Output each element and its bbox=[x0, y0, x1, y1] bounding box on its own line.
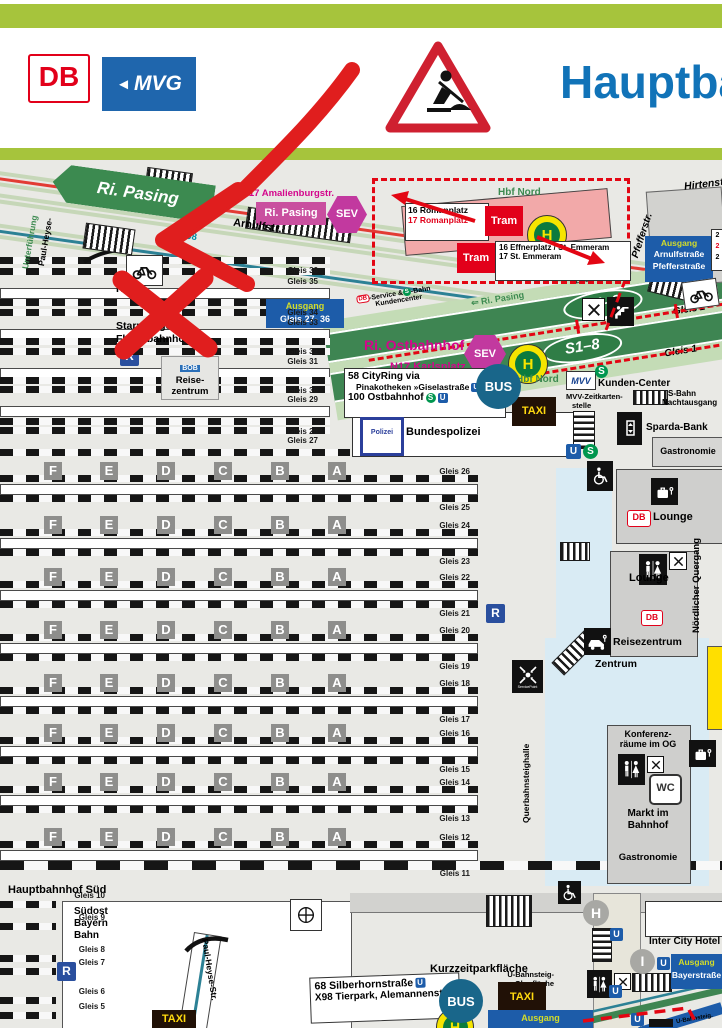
platform-section-letter: A bbox=[328, 828, 346, 846]
gleis-label: Gleis 20 bbox=[420, 626, 470, 635]
ri-pasing-sign-label: Ri. Pasing bbox=[96, 178, 180, 209]
gleis-label: Gleis 27 bbox=[268, 436, 318, 445]
tram-detour-box: Hbf Nord 16 Romanplatz 17 Romanplatz Tra… bbox=[372, 178, 630, 284]
track-bar bbox=[0, 806, 478, 813]
hbf-label: Hbf bbox=[116, 283, 134, 295]
platform-section-letter: C bbox=[214, 621, 232, 639]
bus-badge: BUS bbox=[439, 979, 483, 1023]
track-bar bbox=[0, 841, 478, 848]
sbahn-label: S-Bahn bbox=[668, 389, 696, 398]
construction-sign-icon bbox=[383, 38, 493, 138]
servicepoint-icon: ServicePoint bbox=[512, 660, 543, 693]
bike-parking-icon bbox=[126, 255, 163, 286]
page-title: Hauptbahnhof bbox=[560, 55, 722, 109]
gleis-label: Gleis 30 bbox=[268, 386, 318, 395]
mvv-zeitkarten-label: MVV-Zeitkarten- bbox=[566, 392, 623, 401]
platform-section-letter: F bbox=[44, 621, 62, 639]
track-bar bbox=[0, 997, 56, 1004]
platform-section-letter: C bbox=[214, 674, 232, 692]
platform-section-letter: D bbox=[157, 516, 175, 534]
u-mini-logo: U bbox=[438, 393, 448, 403]
gleis-label: Gleis 31 bbox=[268, 357, 318, 366]
platform-section-letter: B bbox=[271, 516, 289, 534]
exit-street-1: Arnulfstraße bbox=[645, 249, 713, 260]
info-circle-badge: I bbox=[630, 949, 655, 974]
platform-section-letter: E bbox=[100, 773, 118, 791]
platform-section-letter: B bbox=[271, 674, 289, 692]
u-bahn-logo: U bbox=[566, 444, 581, 459]
platform-section-letter: F bbox=[44, 773, 62, 791]
ausgang-word: Ausgang bbox=[521, 1013, 560, 1023]
taxi-sign: TAXI bbox=[498, 982, 546, 1012]
zentrum-label: Zentrum bbox=[595, 658, 637, 670]
platform-section-letter: F bbox=[44, 462, 62, 480]
track-bar bbox=[0, 449, 350, 456]
db-logo-small: DB bbox=[641, 610, 663, 626]
track-bar bbox=[0, 923, 56, 930]
db-logo-text: DB bbox=[39, 61, 79, 92]
cityring-line-2: Pinakotheken »Giselastraße bbox=[356, 382, 469, 392]
wheelchair-icon bbox=[587, 461, 613, 491]
revolving-door-icon bbox=[290, 899, 322, 931]
bundespolizei-label: Bundespolizei bbox=[406, 426, 481, 438]
ausgang-word: Ausgang bbox=[671, 956, 722, 969]
mvv-text: MVV bbox=[571, 376, 591, 386]
cityring-line-3: 100 Ostbahnhof bbox=[348, 392, 424, 403]
platform-section-letter: D bbox=[157, 621, 175, 639]
bayerstrasse-word: Bayerstraße bbox=[671, 969, 722, 982]
track-bar bbox=[0, 581, 478, 588]
r-regio-badge: R bbox=[486, 604, 505, 623]
platform-section-letter: E bbox=[100, 674, 118, 692]
platform-section-letter: A bbox=[328, 568, 346, 586]
platform-section-letter: F bbox=[44, 516, 62, 534]
closed-icon bbox=[669, 552, 687, 570]
gleis-label: Gleis 10 bbox=[55, 891, 105, 900]
u-bahn-logo: U bbox=[609, 985, 622, 998]
platform-section-letter: B bbox=[271, 828, 289, 846]
n17-amalienburgstr-label: N17 Amalienburgstr. bbox=[242, 188, 334, 199]
platform-section-letter: C bbox=[214, 516, 232, 534]
stairs-icon bbox=[632, 973, 672, 992]
bob-reisezentrum: BOB Reise- zentrum bbox=[161, 356, 219, 400]
tram-number: 2 bbox=[712, 241, 722, 252]
escalator-icon bbox=[592, 928, 612, 962]
platform-section-letter: E bbox=[100, 568, 118, 586]
gleis-label: Gleis 26 bbox=[420, 467, 470, 476]
markt-label-1: Markt im bbox=[609, 808, 687, 819]
track-bar bbox=[0, 654, 478, 661]
inter-city-hotel-label: Inter City Hotel bbox=[649, 936, 720, 947]
platform-section-letter: B bbox=[271, 568, 289, 586]
platform-section-letter: D bbox=[157, 724, 175, 742]
kunden-center-label: Kunden-Center bbox=[598, 378, 670, 389]
gleis-label: Gleis 13 bbox=[420, 814, 470, 823]
stairs-icon bbox=[486, 895, 532, 927]
platform-section-letter: B bbox=[271, 773, 289, 791]
luggage-locker-icon bbox=[689, 740, 716, 767]
platform-section-letter: C bbox=[214, 568, 232, 586]
ri-pasing-sev-label: Ri. Pasing bbox=[264, 207, 317, 219]
gleis-label: Gleis 8 bbox=[55, 945, 105, 954]
gleis-label: Gleis 29 bbox=[268, 395, 318, 404]
gleis-label: Gleis 17 bbox=[420, 715, 470, 724]
platform-strip bbox=[0, 696, 478, 707]
tram-number: 2 bbox=[712, 230, 722, 241]
gleis-label: Gleis 34 bbox=[268, 308, 318, 317]
u-bahn-logo: U bbox=[610, 928, 623, 941]
platform-section-letter: D bbox=[157, 828, 175, 846]
gleis-label: Gleis 25 bbox=[420, 503, 470, 512]
bahn-label: Bahn bbox=[74, 930, 99, 941]
gleis-label: Gleis 5 bbox=[55, 1002, 105, 1011]
platform-strip bbox=[0, 746, 478, 757]
lounge-label: Lounge bbox=[629, 572, 669, 584]
mvg-logo-text: MVG bbox=[134, 72, 182, 96]
gastronomie-box: Gastronomie bbox=[652, 437, 722, 467]
konferenz-label-1: Konferenz- bbox=[609, 729, 687, 739]
track-bar bbox=[0, 968, 56, 975]
track-bar bbox=[0, 529, 478, 536]
h-circle-badge: H bbox=[583, 900, 609, 926]
gleis-label: Gleis 28 bbox=[268, 427, 318, 436]
ausgang-word: Ausgang bbox=[645, 238, 713, 249]
track-bar bbox=[0, 757, 478, 764]
platform-strip bbox=[0, 288, 330, 299]
platform-section-letter: E bbox=[100, 724, 118, 742]
closed-icon bbox=[647, 756, 664, 773]
platform-section-letter: B bbox=[271, 462, 289, 480]
platform-section-letter: D bbox=[157, 462, 175, 480]
gleis-label: Gleis 36 bbox=[268, 266, 318, 275]
mvg-arrow-icon: ◄ bbox=[116, 76, 131, 93]
tram-number: 2 bbox=[712, 252, 722, 263]
stairs-icon bbox=[560, 542, 590, 561]
track-bar bbox=[0, 786, 478, 793]
gleis-label: Gleis 15 bbox=[420, 765, 470, 774]
hbf-nord-label: Hbf Nord bbox=[516, 374, 559, 385]
platform-strip bbox=[0, 643, 478, 654]
platform-section-letter: A bbox=[328, 674, 346, 692]
track-bar bbox=[0, 601, 478, 608]
gleis-label: Gleis 18 bbox=[420, 679, 470, 688]
gleis-label: Gleis 16 bbox=[420, 729, 470, 738]
platform-section-letter: A bbox=[328, 724, 346, 742]
platform-section-letter: A bbox=[328, 462, 346, 480]
mvv-logo: MVV bbox=[566, 371, 596, 390]
platform-section-letter: E bbox=[100, 621, 118, 639]
track-bar bbox=[0, 418, 330, 425]
fluegelbahnhof-label: Flügelbahnhof bbox=[116, 333, 188, 345]
db-logo-small: DB bbox=[627, 510, 651, 527]
wc-sign: WC bbox=[649, 774, 682, 805]
gleis-label: Gleis 6 bbox=[55, 987, 105, 996]
nachtausgang-label: Nachtausgang bbox=[662, 398, 717, 407]
gleis-label: Gleis 7 bbox=[55, 958, 105, 967]
platform-section-letter: C bbox=[214, 462, 232, 480]
tram-numbers-partial: 2 2 2 bbox=[711, 229, 722, 271]
x98-label: X98 bbox=[179, 230, 197, 243]
mvg-logo: ◄ MVG bbox=[102, 57, 196, 111]
reisezentrum-label: Reisezentrum bbox=[613, 636, 682, 648]
gastronomie-label: Gastronomie bbox=[609, 852, 687, 863]
gleis-label: Gleis 9 bbox=[55, 913, 105, 922]
starnberger-label: Starnberger bbox=[116, 320, 176, 332]
gleis-label: Gleis 12 bbox=[420, 833, 470, 842]
u-bahn-logo: U bbox=[657, 957, 670, 970]
yellow-strip bbox=[707, 646, 722, 730]
ubahnsteig-label-1: U-Bahnsteig- bbox=[480, 970, 554, 979]
s-bahn-logo: S bbox=[595, 365, 608, 378]
tram-detour-arrows bbox=[375, 181, 627, 281]
track-bar bbox=[0, 549, 478, 556]
luggage-locker-icon bbox=[651, 478, 678, 505]
bus-badge: BUS bbox=[476, 364, 521, 409]
stelle-label: stelle bbox=[572, 401, 591, 410]
polizei-sign: Polizei bbox=[360, 417, 404, 456]
wc-icon bbox=[618, 754, 645, 785]
escalator-icon bbox=[607, 297, 634, 326]
track-bar bbox=[0, 687, 478, 694]
wheelchair-icon bbox=[558, 881, 581, 904]
platform-section-letter: D bbox=[157, 773, 175, 791]
platform-section-letter: F bbox=[44, 828, 62, 846]
gleis-label: Gleis 22 bbox=[420, 573, 470, 582]
track-bar bbox=[0, 955, 56, 962]
crossing-closed-icon bbox=[582, 298, 605, 321]
platform-section-letter: A bbox=[328, 621, 346, 639]
platform-section-letter: C bbox=[214, 724, 232, 742]
exit-sign-bottom: Ausgang bbox=[488, 1010, 593, 1028]
platform-section-letter: E bbox=[100, 516, 118, 534]
exit-bayerstrasse-sign: Ausgang Bayerstraße bbox=[671, 954, 722, 989]
track-bar bbox=[0, 707, 478, 714]
platform-section-letter: D bbox=[157, 674, 175, 692]
platform-strip bbox=[0, 538, 478, 549]
noerdlicher-quergang-label: Nördlicher Quergang bbox=[691, 505, 706, 633]
track-bar bbox=[0, 634, 478, 641]
gleis-label: Gleis 19 bbox=[420, 662, 470, 671]
konferenz-label-2: räume im OG bbox=[609, 739, 687, 749]
taxi-sign: TAXI bbox=[152, 1010, 196, 1028]
sparda-bank-label: Sparda-Bank bbox=[646, 422, 708, 433]
header-green-bar-top bbox=[0, 4, 722, 28]
db-logo: DB bbox=[28, 54, 90, 103]
db-lounge-label: Lounge bbox=[653, 511, 693, 523]
platform-section-letter: E bbox=[100, 462, 118, 480]
gleis-label: Gleis 24 bbox=[420, 521, 470, 530]
bike-parking-icon bbox=[681, 278, 720, 311]
ri-ostbahnhof-label: Ri. Ostbahnhof bbox=[364, 337, 464, 353]
platform-strip bbox=[0, 795, 478, 806]
reise-label: Reise- bbox=[162, 375, 218, 386]
platform-strip bbox=[0, 406, 330, 417]
taxi-sign: TAXI bbox=[512, 397, 556, 426]
u-mini-logo: U bbox=[415, 978, 425, 988]
s-bahn-logo: S bbox=[583, 444, 598, 459]
track-bar bbox=[0, 901, 56, 908]
gleis-label: Gleis 32 bbox=[268, 347, 318, 356]
platform-section-letter: F bbox=[44, 724, 62, 742]
gleis-label: Gleis 33 bbox=[268, 318, 318, 327]
station-map: DB ◄ MVG Hauptbahnhof S1–8 S1–8 Gleis 2 … bbox=[0, 0, 722, 1028]
platform-section-letter: B bbox=[271, 724, 289, 742]
gleis-label: Gleis 14 bbox=[420, 778, 470, 787]
u-bahn-logo: U bbox=[631, 1013, 644, 1026]
exit-arnulfstrasse-sign: Ausgang Arnulfstraße Pfefferstraße bbox=[645, 236, 713, 282]
gleis-label: Gleis 23 bbox=[420, 557, 470, 566]
querbahnsteighalle-label: Querbahnsteighalle bbox=[521, 708, 537, 823]
u-line-box bbox=[649, 1019, 673, 1027]
track-bar bbox=[0, 257, 330, 264]
markt-label-2: Bahnhof bbox=[609, 820, 687, 831]
gleis-label: Gleis 35 bbox=[268, 277, 318, 286]
elevator-icon bbox=[617, 412, 642, 445]
servicepoint-label: ServicePoint bbox=[518, 685, 538, 689]
gleis-label: Gleis 11 bbox=[420, 869, 470, 878]
platform-section-letter: E bbox=[100, 828, 118, 846]
track-bar bbox=[0, 475, 478, 482]
platform-section-letter: A bbox=[328, 516, 346, 534]
bob-logo: BOB bbox=[180, 365, 200, 372]
car-rental-icon bbox=[584, 628, 611, 655]
platform-section-letter: B bbox=[271, 621, 289, 639]
track-bar bbox=[0, 737, 478, 744]
platform-section-letter: F bbox=[44, 568, 62, 586]
s-mini-logo: S bbox=[426, 393, 436, 403]
zentrum-label: zentrum bbox=[162, 386, 218, 397]
hotel-building bbox=[645, 901, 722, 937]
track-bar bbox=[0, 495, 478, 502]
platform-strip bbox=[0, 590, 478, 601]
platform-section-letter: A bbox=[328, 773, 346, 791]
header-green-bar-bottom bbox=[0, 148, 722, 160]
platform-section-letter: D bbox=[157, 568, 175, 586]
track-bar bbox=[0, 1012, 56, 1019]
platform-section-letter: C bbox=[214, 773, 232, 791]
platform-section-letter: F bbox=[44, 674, 62, 692]
platform-strip bbox=[0, 484, 478, 495]
platform-section-letter: C bbox=[214, 828, 232, 846]
gleis-label: Gleis 21 bbox=[420, 609, 470, 618]
exit-street-2: Pfefferstraße bbox=[645, 261, 713, 272]
platform-strip bbox=[0, 850, 478, 861]
